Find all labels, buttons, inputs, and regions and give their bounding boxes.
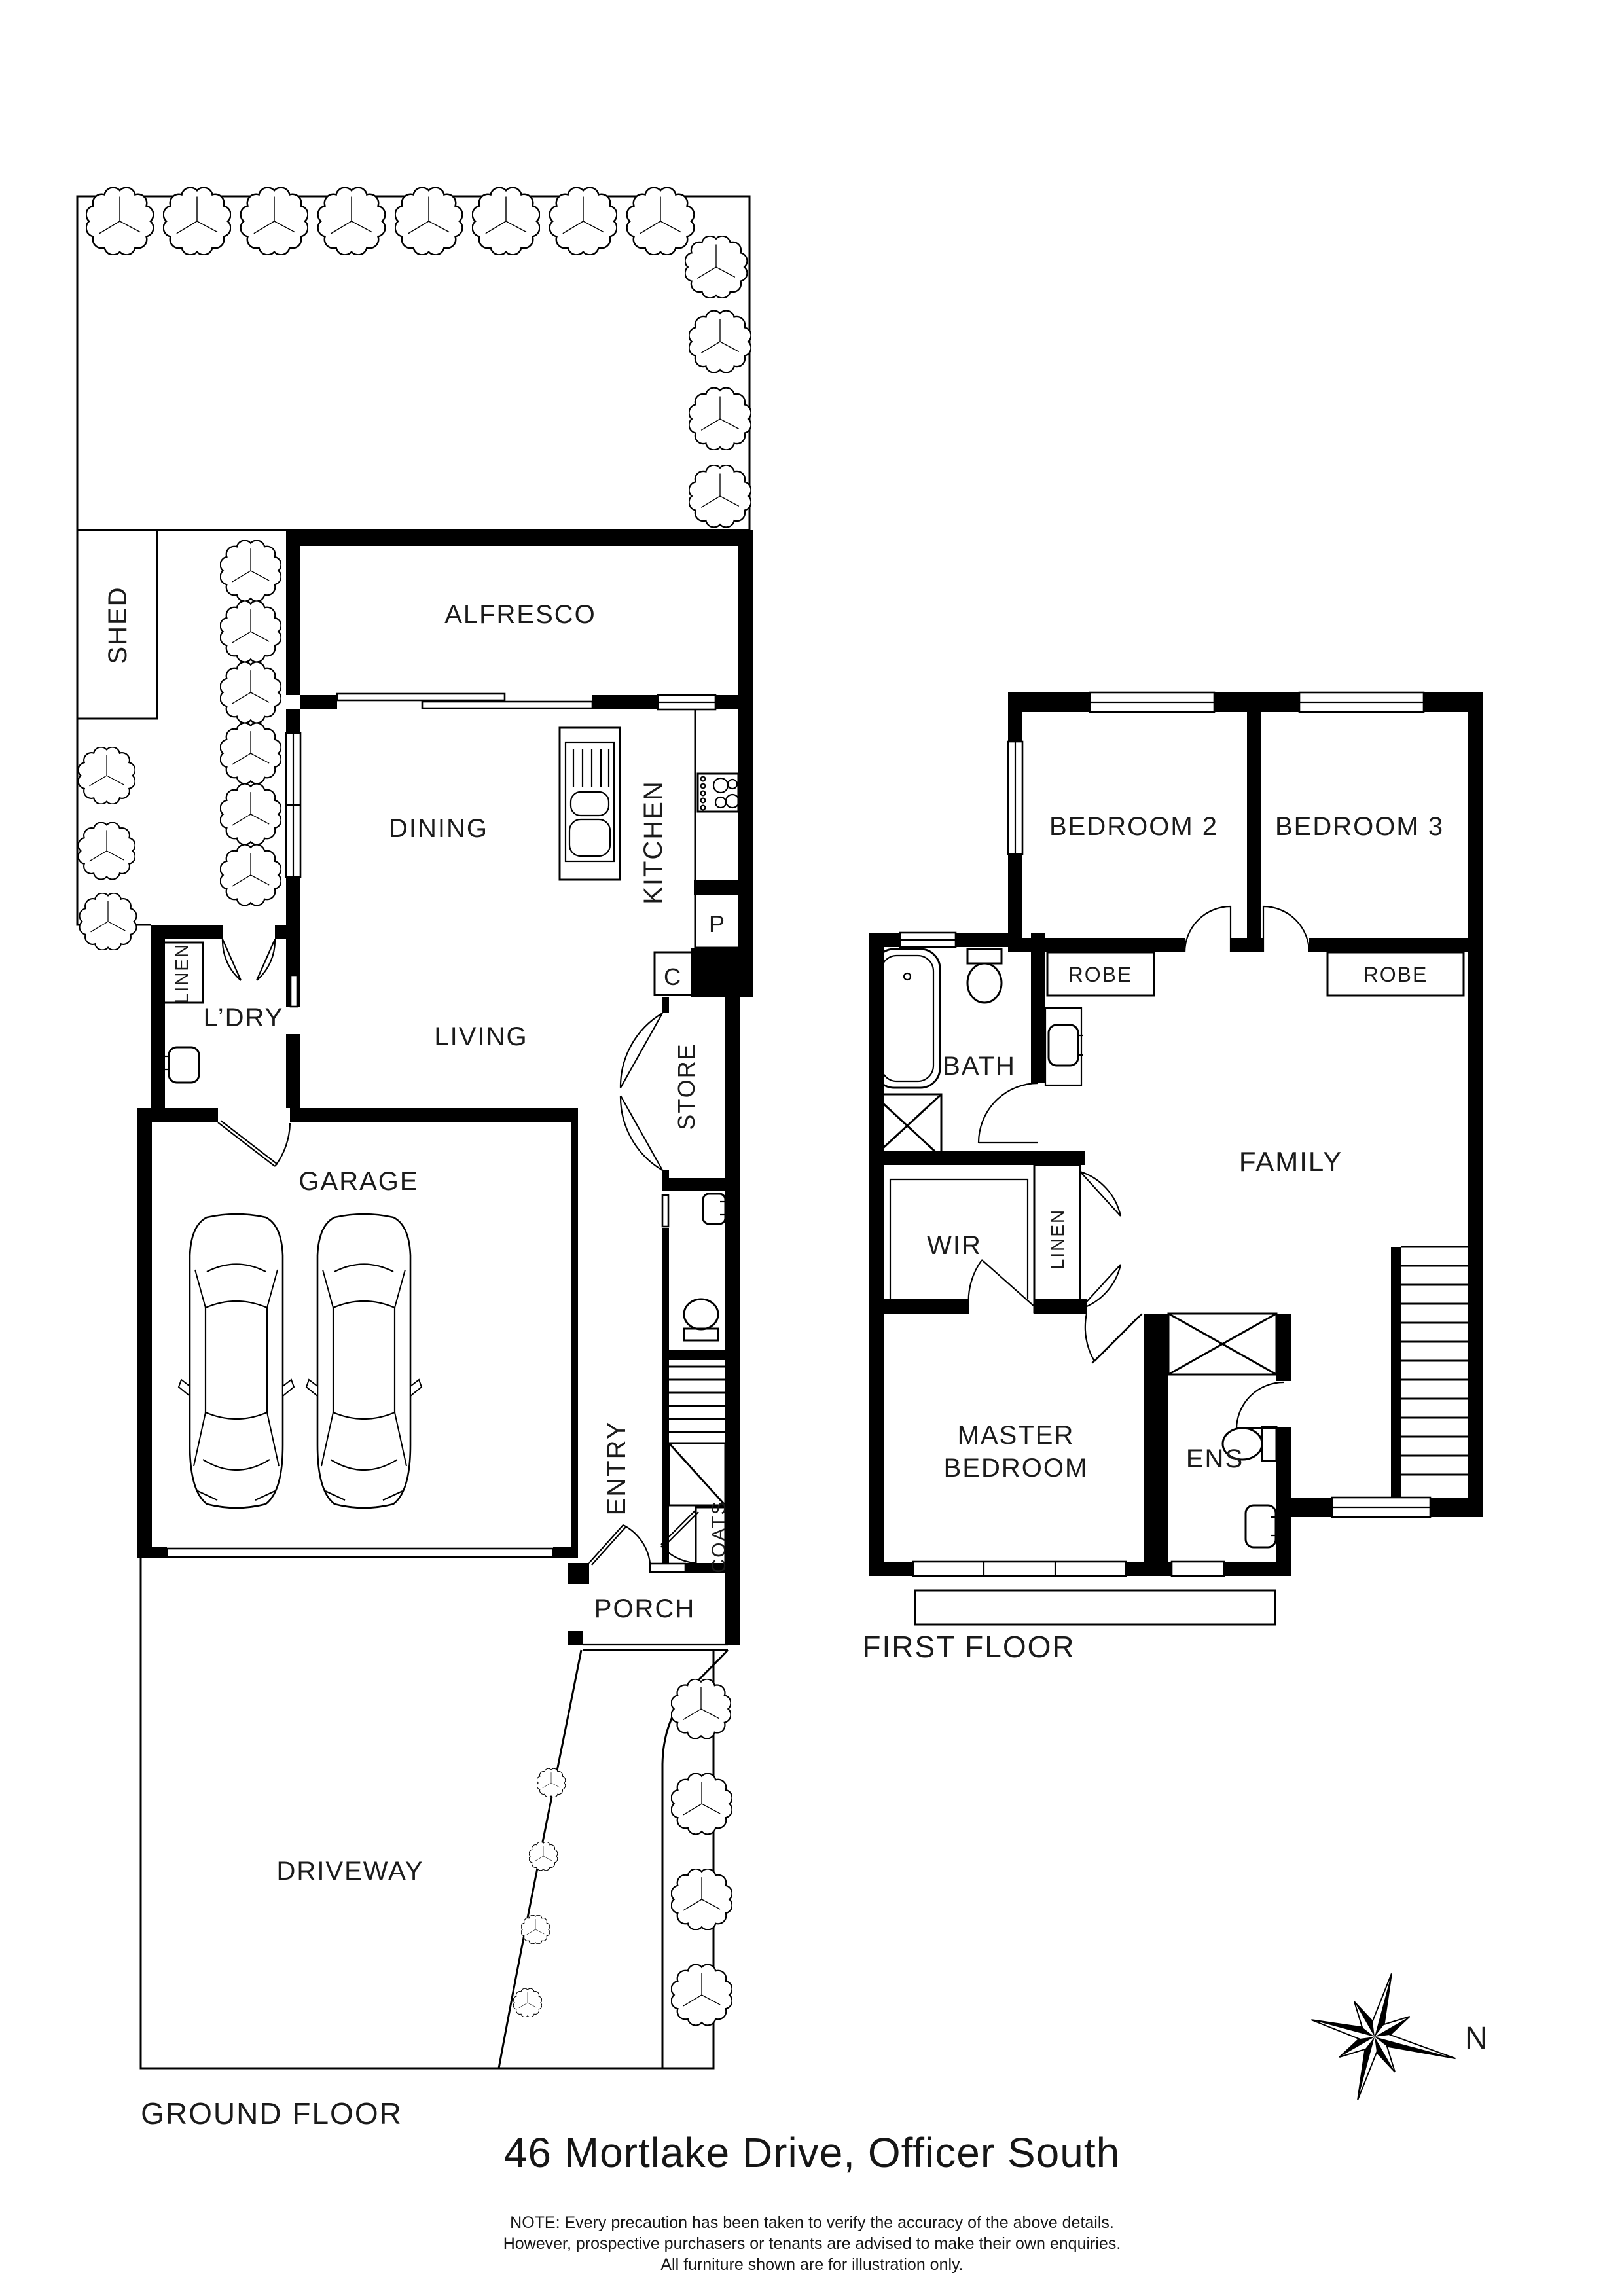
room-label-shed: SHED — [103, 586, 132, 664]
first-floor-title: FIRST FLOOR — [862, 1630, 1075, 1664]
door-leaf — [662, 1195, 668, 1227]
sliding-door-icon — [337, 694, 505, 700]
room-label-master-line2: BEDROOM — [944, 1454, 1089, 1482]
compass-north-label: N — [1465, 2021, 1489, 2056]
bush-icon — [689, 465, 751, 528]
room-label-ensuite: ENS — [1186, 1444, 1244, 1473]
bush-icon — [689, 311, 751, 373]
sink-bowl — [571, 792, 609, 816]
bush-icon — [221, 662, 281, 723]
room-label-bedroom2: BEDROOM 2 — [1049, 812, 1218, 841]
sliding-door-icon — [422, 702, 592, 708]
room-label-robe2: ROBE — [1068, 963, 1133, 986]
room-label-store: STORE — [673, 1043, 700, 1130]
bush-icon — [550, 188, 617, 255]
car-icon — [179, 1214, 294, 1508]
car-icon — [306, 1214, 422, 1508]
bush-icon — [86, 188, 154, 255]
room-label-master-line1: MASTER — [958, 1421, 1075, 1450]
compass-rose — [1311, 1973, 1455, 2100]
ground-floor-plan: SHED ALFRESCO DINING KITCHEN P C LINEN L… — [77, 188, 753, 2130]
bush-icon — [221, 784, 281, 845]
room-label-porch: PORCH — [594, 1594, 695, 1623]
sink-icon — [703, 1194, 725, 1224]
bush-icon — [529, 1842, 557, 1870]
bush-icon — [79, 747, 135, 804]
door-leaf — [291, 975, 297, 1007]
bush-icon — [395, 188, 463, 255]
room-label-bath: BATH — [943, 1052, 1016, 1081]
first-floor-plan: BEDROOM 2 BEDROOM 3 ROBE ROBE BATH FAMIL… — [862, 692, 1483, 1664]
bush-icon — [689, 388, 751, 450]
note-line-3: All furniture shown are for illustration… — [0, 2254, 1624, 2275]
laundry-trough-icon — [169, 1047, 199, 1083]
room-label-garage: GARAGE — [298, 1167, 418, 1196]
bush-icon — [672, 1774, 732, 1835]
room-label-kitchen: KITCHEN — [639, 780, 668, 905]
stairs — [1401, 1247, 1468, 1475]
window-icon — [1172, 1562, 1224, 1576]
door-leaf — [218, 1121, 278, 1166]
bathtub-icon — [875, 949, 940, 1088]
bush-icon — [521, 1915, 549, 1943]
ground-floor-title: GROUND FLOOR — [141, 2096, 403, 2130]
window-icon — [913, 1562, 1126, 1576]
front-door-sill — [650, 1564, 685, 1572]
stairs — [669, 1367, 725, 1505]
door-leaf — [589, 1525, 626, 1565]
site-boundary — [77, 196, 749, 2068]
bush-icon — [537, 1768, 565, 1797]
page-title: 46 Mortlake Drive, Officer South — [0, 2128, 1624, 2177]
garage-door-icon — [167, 1549, 553, 1557]
room-label-dining: DINING — [389, 814, 488, 843]
bush-icon — [672, 1679, 731, 1739]
room-label-laundry: L’DRY — [204, 1003, 284, 1032]
vanity-bench — [1045, 1008, 1081, 1085]
bush-icon — [221, 601, 281, 662]
sink-icon — [1049, 1025, 1078, 1066]
bush-icon — [79, 823, 135, 880]
room-label-entry: ENTRY — [602, 1421, 631, 1516]
bush-icon — [221, 541, 281, 601]
room-label-bedroom3: BEDROOM 3 — [1275, 812, 1444, 841]
garden-bushes — [79, 188, 751, 2026]
linen-doors — [1080, 1172, 1121, 1309]
room-label-linen-ground: LINEN — [171, 943, 192, 1003]
room-label-linen-first: LINEN — [1047, 1209, 1068, 1269]
floor-plan-page: { "page": { "title": "46 Mortlake Drive,… — [0, 0, 1624, 2296]
bush-icon — [627, 188, 695, 255]
bush-icon — [221, 723, 281, 784]
bush-icon — [318, 188, 386, 255]
disclaimer-note: NOTE: Every precaution has been taken to… — [0, 2212, 1624, 2275]
bush-icon — [473, 188, 540, 255]
room-label-robe3: ROBE — [1363, 963, 1428, 986]
note-line-2: However, prospective purchasers or tenan… — [0, 2233, 1624, 2254]
bush-icon — [241, 188, 308, 255]
bush-icon — [672, 1965, 732, 2026]
room-label-wir: WIR — [927, 1231, 982, 1260]
room-label-living: LIVING — [434, 1022, 528, 1051]
kitchen-island — [560, 728, 620, 880]
bush-icon — [80, 893, 137, 950]
toilet-icon — [684, 1299, 718, 1329]
store-doors — [621, 1013, 662, 1170]
bush-icon — [685, 236, 748, 298]
sink-icon — [1246, 1505, 1276, 1547]
room-label-driveway: DRIVEWAY — [277, 1857, 424, 1886]
bush-icon — [672, 1869, 732, 1930]
first-floor-fixtures — [873, 906, 1468, 1547]
bush-icon — [164, 188, 231, 255]
laundry-doors — [223, 939, 275, 980]
balcony-edge — [915, 1590, 1275, 1624]
bush-icon — [513, 1988, 541, 2017]
room-label-family: FAMILY — [1239, 1146, 1343, 1177]
room-label-cupboard: C — [664, 963, 682, 990]
note-line-1: NOTE: Every precaution has been taken to… — [0, 2212, 1624, 2233]
floor-plan-drawing: SHED ALFRESCO DINING KITCHEN P C LINEN L… — [0, 0, 1624, 2296]
toilet-icon — [967, 949, 1001, 963]
room-label-pantry: P — [709, 910, 726, 937]
room-label-alfresco: ALFRESCO — [444, 600, 596, 629]
bush-icon — [221, 845, 281, 906]
linen-xbox — [1168, 1314, 1276, 1374]
sink-bowl — [569, 819, 610, 856]
room-label-coats: COATS — [708, 1500, 730, 1573]
